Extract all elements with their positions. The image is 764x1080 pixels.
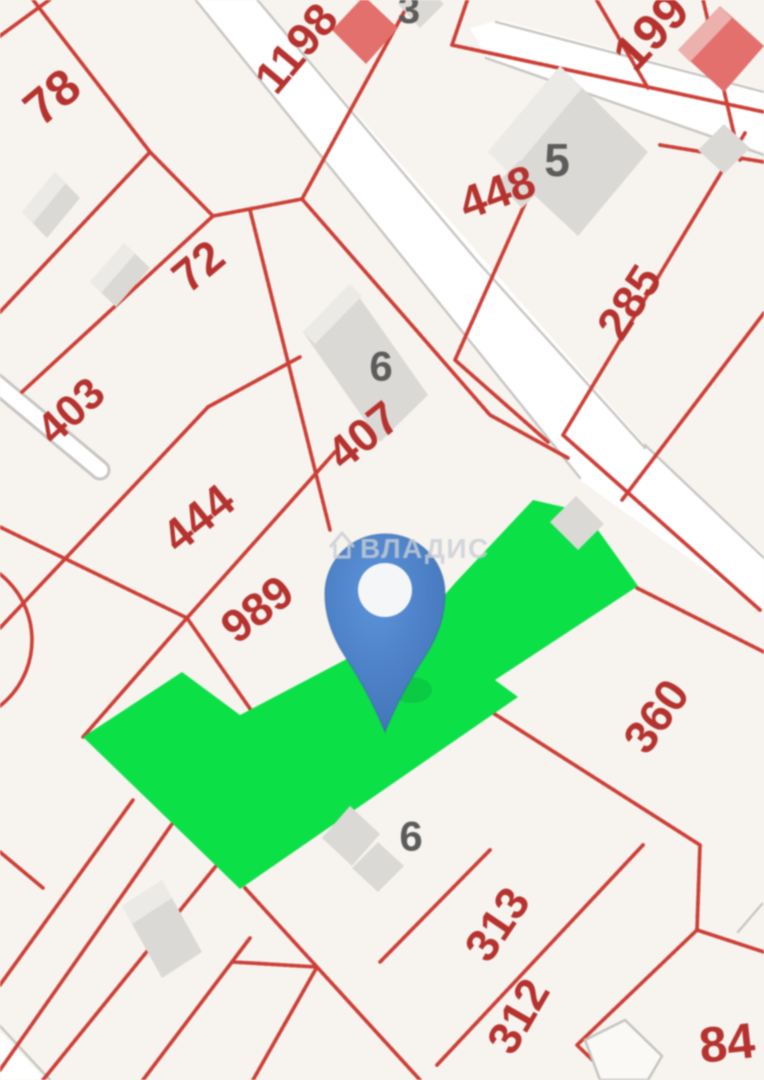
watermark-text: ВЛАДИС (360, 533, 490, 564)
building-number-label: 5 (544, 134, 570, 186)
pin-dot (358, 563, 412, 617)
parcel-number-label: 84 (696, 1012, 757, 1074)
building-number-label: 3 (398, 0, 420, 32)
building-number-label: 6 (399, 813, 422, 860)
map-viewport: 7811983199448572285403640744498936063133… (0, 0, 764, 1080)
building-number-label: 6 (369, 343, 392, 390)
map-canvas[interactable]: 7811983199448572285403640744498936063133… (0, 0, 764, 1080)
